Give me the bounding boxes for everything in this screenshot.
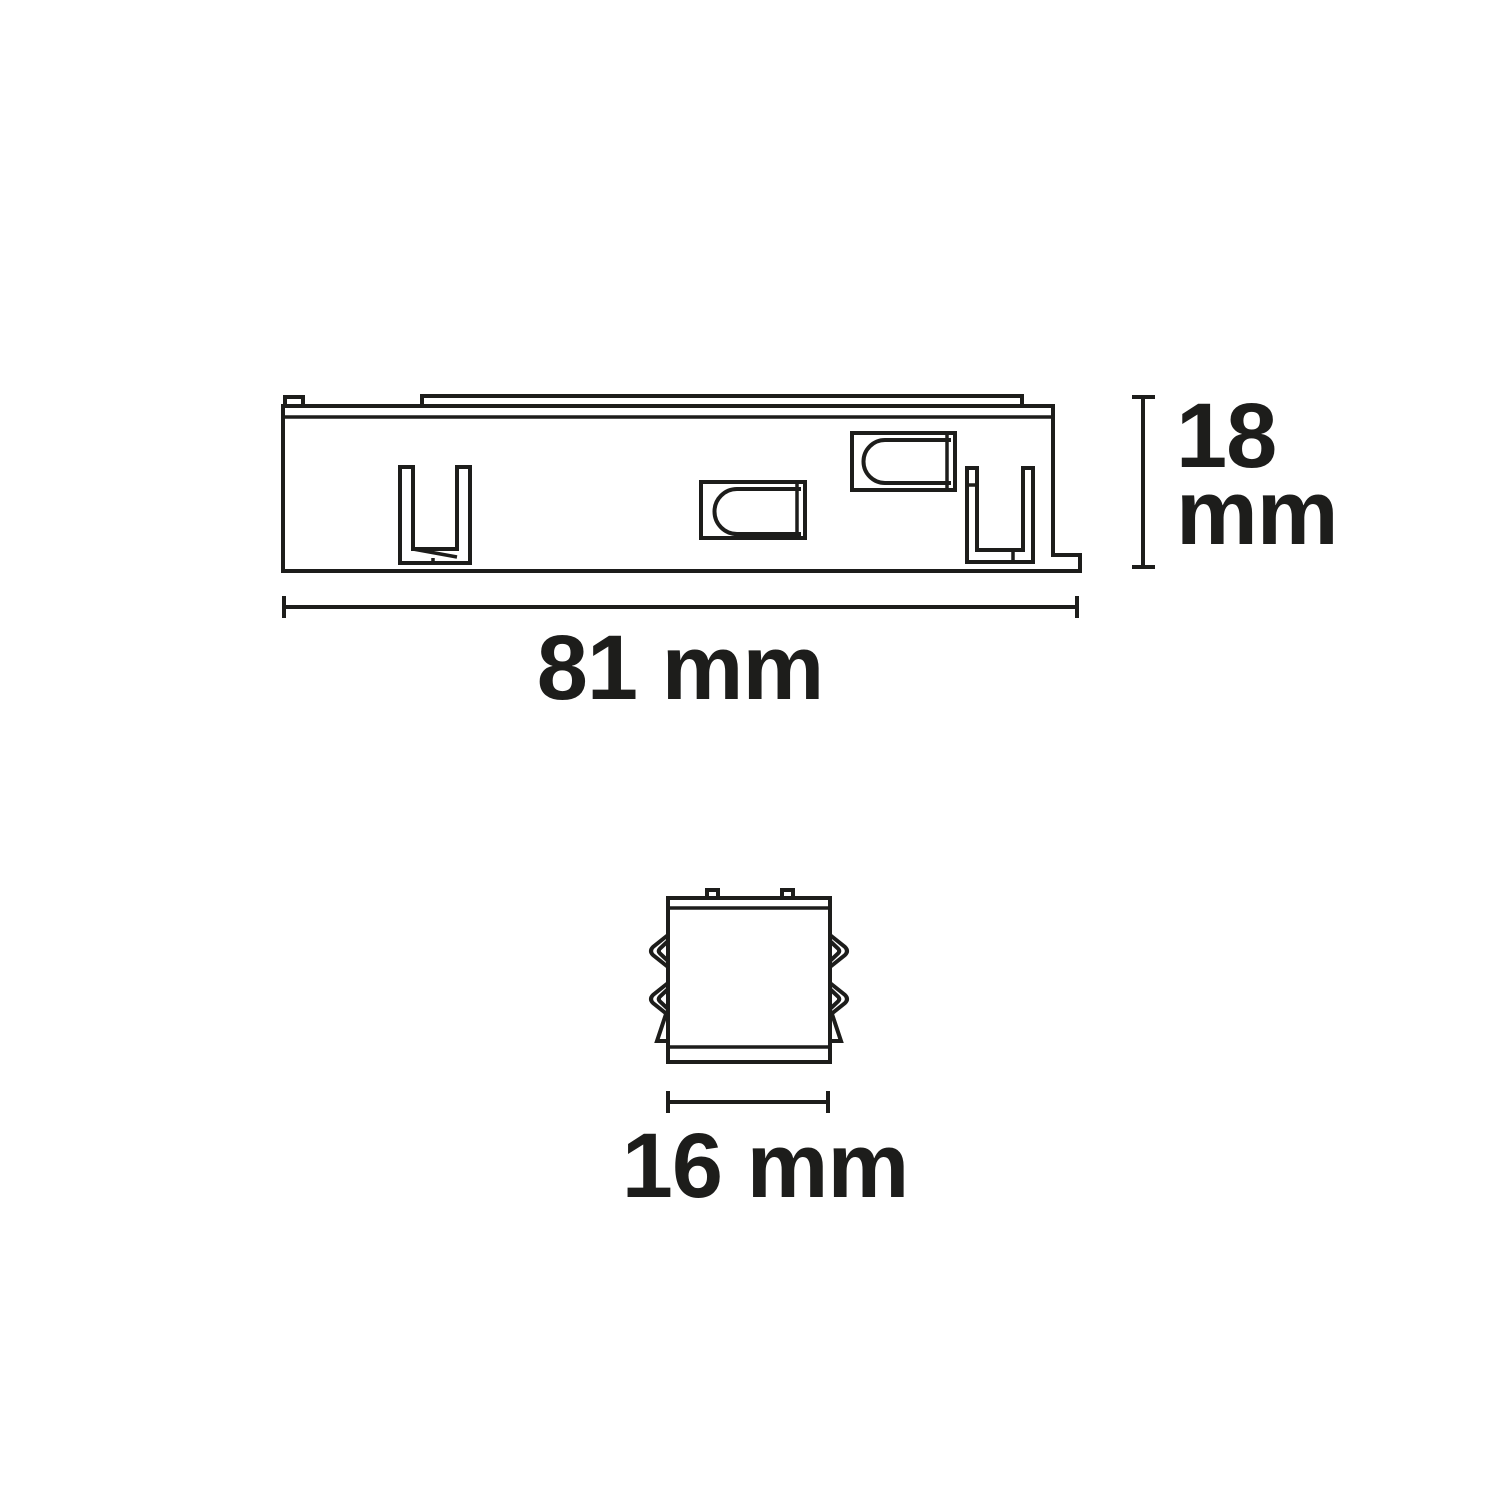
mounting-clip-right bbox=[967, 468, 1033, 562]
depth-dimension-label: 16 mm bbox=[465, 1114, 1065, 1219]
height-dimension-unit: mm bbox=[1176, 462, 1338, 564]
side-view-drawing bbox=[283, 396, 1080, 571]
side-view-body-outline bbox=[283, 406, 1080, 571]
spring-clips-right bbox=[830, 935, 847, 1041]
width-dimension-line bbox=[284, 596, 1077, 618]
contact-window-right bbox=[852, 433, 955, 490]
contact-window-middle bbox=[701, 482, 805, 538]
dimension-drawing bbox=[0, 0, 1500, 1500]
mounting-clip-left bbox=[400, 467, 470, 563]
front-view-body-outline bbox=[668, 898, 830, 1062]
height-dimension-line bbox=[1132, 397, 1155, 567]
spring-clips-left bbox=[651, 935, 668, 1041]
technical-drawing-canvas: 18 mm 81 mm 16 mm bbox=[0, 0, 1500, 1500]
depth-dimension-line bbox=[668, 1091, 828, 1113]
height-dimension-label: 18 mm bbox=[1176, 398, 1338, 552]
front-view-drawing bbox=[651, 890, 847, 1062]
width-dimension-label: 81 mm bbox=[380, 616, 980, 721]
